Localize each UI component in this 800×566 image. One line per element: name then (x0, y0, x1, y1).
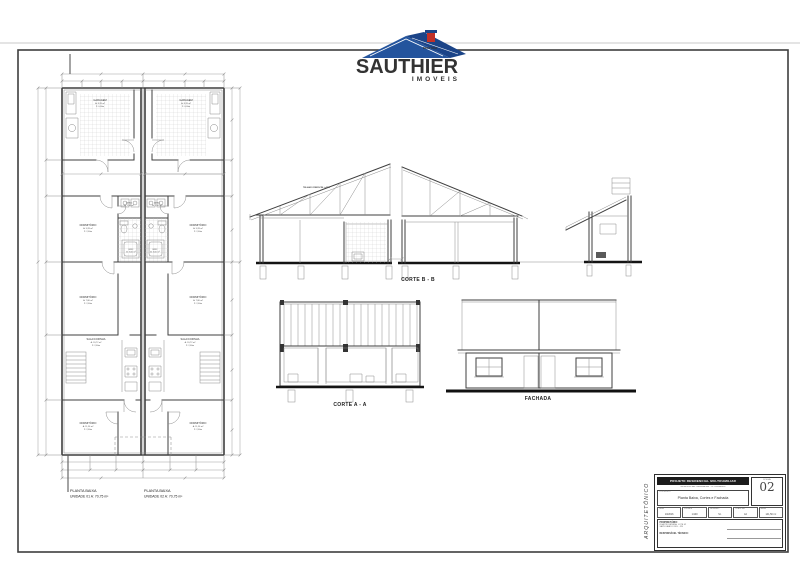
svg-text:A: 11,56 m²: A: 11,56 m² (193, 425, 204, 428)
field-data: DATA 10/2016 (657, 507, 681, 518)
plan-caption-unit2-sub: UNIDADE 02 A: 70,75 m² (144, 494, 183, 498)
svg-text:P: 2,60m: P: 2,60m (194, 231, 203, 233)
svg-text:SALA/COZINHA: SALA/COZINHA (86, 337, 105, 341)
plan-caption-unit1-sub: UNIDADE 01 A: 70,75 m² (70, 494, 109, 498)
plan-caption-unit2: PLANTA BAIXA (144, 489, 171, 493)
svg-text:DORMITÓRIO: DORMITÓRIO (80, 420, 97, 425)
content-value: Planta Baixa, Cortes e Fachada (678, 496, 729, 500)
content-label: CONTEÚDO (659, 491, 670, 493)
svg-text:DORMITÓRIO: DORMITÓRIO (190, 222, 207, 227)
svg-text:A: 11,56 m²: A: 11,56 m² (83, 425, 94, 428)
fachada-label: FACHADA (525, 396, 552, 402)
sheet-content-box: CONTEÚDO Planta Baixa, Cortes e Fachada (657, 490, 749, 506)
svg-text:A: 9,28 m²: A: 9,28 m² (193, 227, 203, 230)
svg-text:SALA/COZINHA: SALA/COZINHA (180, 337, 199, 341)
svg-text:P: 2,60m: P: 2,60m (84, 231, 93, 233)
svg-text:A: 7,80 m²: A: 7,80 m² (83, 299, 93, 302)
svg-text:DORMITÓRIO: DORMITÓRIO (80, 294, 97, 299)
sauthier-logo: IMOBILIARIA SAUTHIER IMOVEIS (356, 30, 466, 83)
svg-text:P: 2,60m: P: 2,60m (84, 303, 93, 305)
discipline-vertical-label: ARQUITETÔNICO (642, 478, 652, 544)
svg-text:A: 8,28 m²: A: 8,28 m² (95, 102, 105, 105)
title-block-owner: PROPRIETÁRIO: RUA PROJETADA, LOTE 02 SAP… (657, 519, 783, 548)
svg-text:P: 2,60m: P: 2,60m (186, 345, 195, 347)
svg-text:DORMITÓRIO: DORMITÓRIO (80, 222, 97, 227)
svg-text:P: 0,00m: P: 0,00m (182, 106, 191, 108)
roof-note: TELHADO FIBROCIM. i=27% (303, 186, 330, 189)
corte-aa-label: CORTE A - A (333, 402, 366, 408)
signature-line (727, 528, 780, 530)
svg-text:A: 3,60 m²: A: 3,60 m² (150, 251, 160, 254)
svg-text:A: 1,56 m²: A: 1,56 m² (124, 204, 134, 207)
svg-text:A: 9,28 m²: A: 9,28 m² (83, 227, 93, 230)
svg-text:P: 2,60m: P: 2,60m (84, 429, 93, 431)
svg-text:A: 20,72 m²: A: 20,72 m² (91, 341, 102, 344)
project-title: PROJETO RESIDENCIAL MULTIFAMILIAR (657, 477, 749, 485)
field-area: ÁREA 141,50 m² (759, 507, 783, 518)
title-block-fields: DATA 10/2016 ESCALA 1/100 DESENHO S.I. P… (657, 507, 783, 518)
facade-elevation: FACHADA (446, 300, 636, 402)
title-block: PROJETO RESIDENCIAL MULTIFAMILIAR RESIDÊ… (654, 474, 786, 551)
field-escala: ESCALA 1/100 (682, 507, 706, 518)
svg-text:DORMITÓRIO: DORMITÓRIO (190, 420, 207, 425)
sheet-number: 02 (759, 481, 774, 494)
field-desenho: DESENHO S.I. (708, 507, 732, 518)
svg-text:ÁREA: ÁREA (126, 201, 132, 204)
signature-line (727, 537, 780, 539)
section-corte-bb: TELHADO FIBROCIM. i=27% CORTE B - B (250, 164, 642, 283)
corte-bb-label: CORTE B - B (401, 277, 435, 283)
svg-text:DORMITÓRIO: DORMITÓRIO (190, 294, 207, 299)
svg-text:GARAGEM: GARAGEM (179, 98, 192, 102)
logo-sub: IMOVEIS (412, 76, 460, 83)
signature-lines (722, 522, 780, 546)
responsible-label: RESPONSÁVEL TÉCNICO: (660, 533, 721, 535)
svg-text:ÁREA: ÁREA (154, 201, 160, 204)
project-subtitle: RESIDÊNCIAS GEMINADAS - 02 UNIDADES (657, 486, 749, 489)
svg-text:P: 2,60m: P: 2,60m (92, 345, 101, 347)
svg-text:GARAGEM: GARAGEM (93, 98, 106, 102)
svg-text:A: 7,80 m²: A: 7,80 m² (193, 299, 203, 302)
svg-text:A: 1,56 m²: A: 1,56 m² (152, 204, 162, 207)
svg-text:P: 0,00m: P: 0,00m (96, 106, 105, 108)
logo-tagline: IMOBILIARIA (423, 47, 438, 50)
svg-text:A: 20,72 m²: A: 20,72 m² (185, 341, 196, 344)
svg-text:A: 8,28 m²: A: 8,28 m² (181, 102, 191, 105)
field-prancha: PRANCHA A4 (733, 507, 757, 518)
plan-caption-unit1: PLANTA BAIXA (70, 489, 97, 493)
drawing-sheet: IMOBILIARIA SAUTHIER IMOVEIS GARAGEM A: … (0, 0, 800, 566)
sheet-number-box: FOLHA 02 (751, 477, 783, 506)
svg-text:P: 2,60m: P: 2,60m (194, 429, 203, 431)
section-corte-aa: CORTE A - A (276, 300, 424, 408)
logo-brand: SAUTHIER (356, 56, 459, 78)
floor-plan: GARAGEM A: 8,28 m² P: 0,00m ÁREA A: 1,56… (37, 54, 242, 498)
svg-text:P: 2,60m: P: 2,60m (194, 303, 203, 305)
svg-text:A: 3,60 m²: A: 3,60 m² (126, 251, 136, 254)
